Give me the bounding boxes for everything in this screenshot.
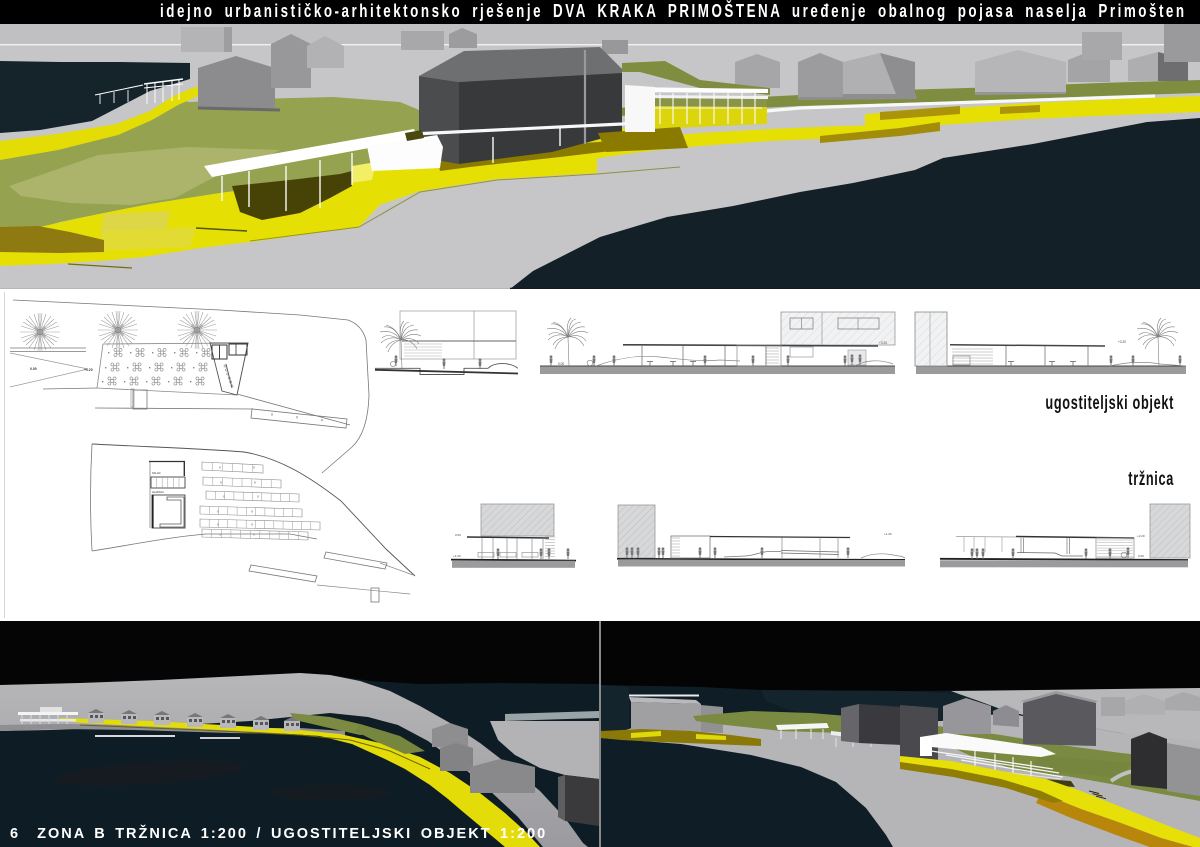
svg-text:+3.20: +3.20 <box>1137 534 1145 538</box>
svg-text:0.00: 0.00 <box>1138 554 1144 558</box>
svg-text:0.00: 0.00 <box>455 533 461 537</box>
svg-text:SKLAD: SKLAD <box>152 471 161 475</box>
svg-text:+1.20: +1.20 <box>453 554 461 558</box>
svg-text:+3.20: +3.20 <box>1118 340 1126 344</box>
svg-text:0.00: 0.00 <box>30 367 37 371</box>
svg-text:ugostiteljski objekt: ugostiteljski objekt <box>1045 393 1174 414</box>
svg-text:+1.20: +1.20 <box>884 532 892 536</box>
svg-text:tržnica: tržnica <box>1128 469 1174 490</box>
svg-text:0.00: 0.00 <box>558 362 564 366</box>
svg-text:+3.20: +3.20 <box>879 341 887 345</box>
svg-text:HLADNJA: HLADNJA <box>152 490 164 494</box>
svg-text:+1.20: +1.20 <box>84 368 93 372</box>
